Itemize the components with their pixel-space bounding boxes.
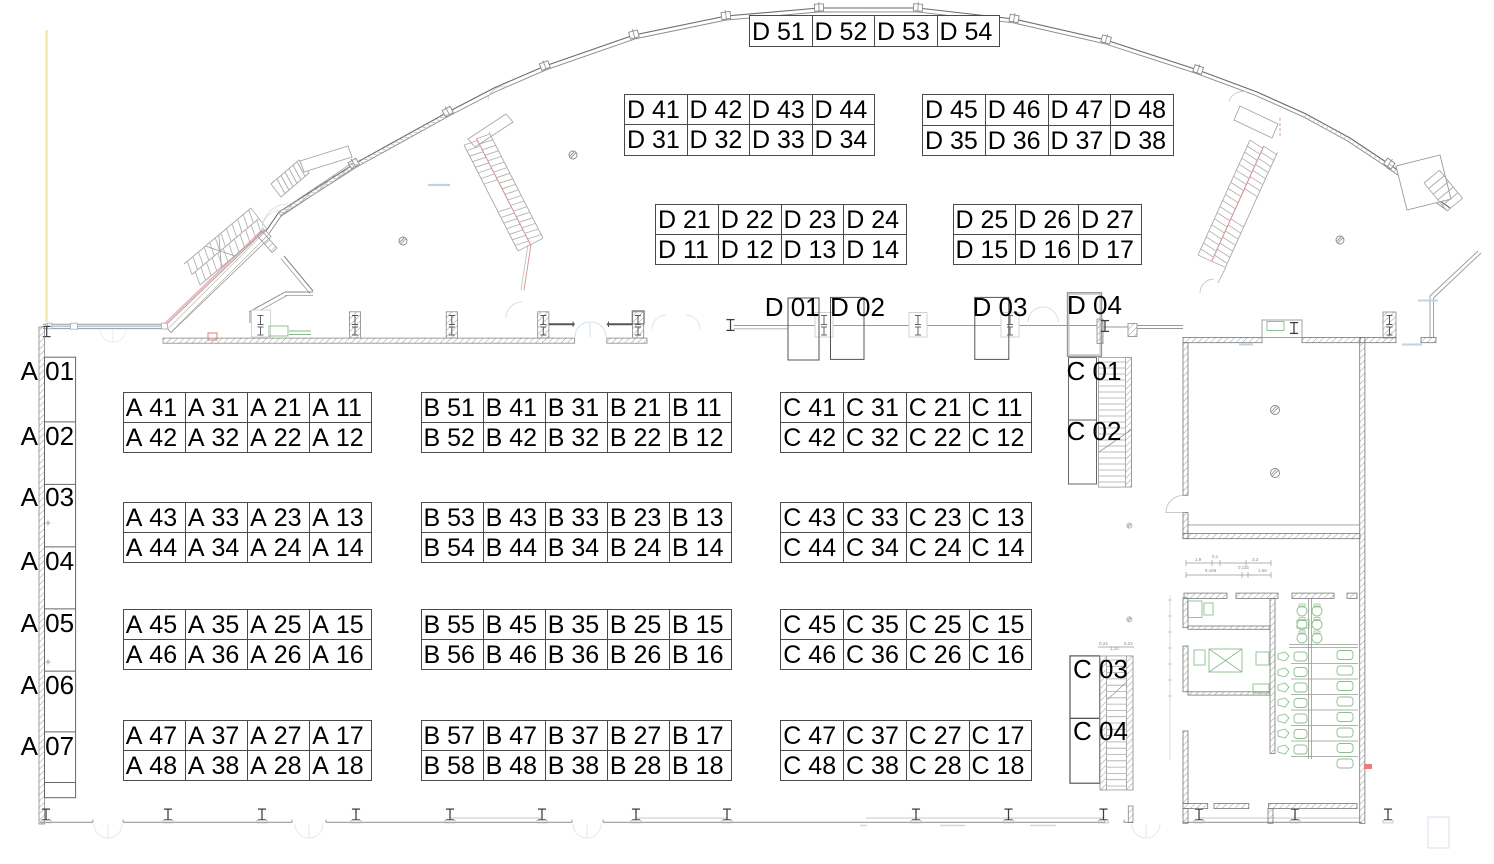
- svg-text:0,24: 0,24: [1124, 641, 1133, 646]
- svg-text:1,10: 1,10: [1110, 646, 1119, 651]
- svg-text:3,3: 3,3: [1252, 557, 1259, 562]
- svg-text:1,9: 1,9: [1195, 557, 1202, 562]
- svg-text:0,1: 0,1: [1212, 554, 1219, 559]
- svg-text:5,166: 5,166: [1205, 568, 1217, 573]
- svg-text:0,115: 0,115: [1238, 565, 1249, 570]
- svg-text:1,56: 1,56: [1258, 568, 1267, 573]
- svg-text:0,24: 0,24: [1099, 641, 1108, 646]
